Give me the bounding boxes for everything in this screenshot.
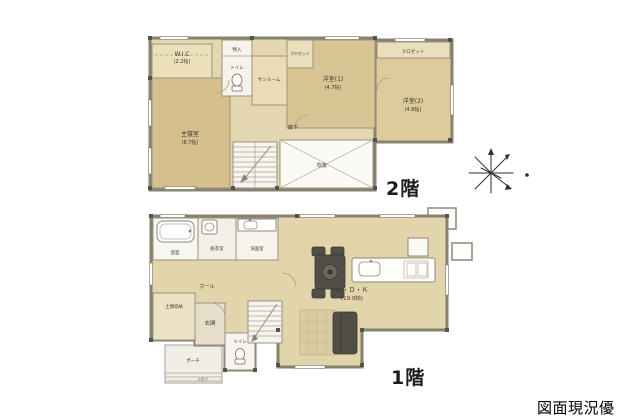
wic-size: (2.2帖) [174, 58, 191, 65]
floor1-plan: 浴室 脱衣室 洗面室 ホール 土間収納 玄関 トイレ ポーチ ※壁芯 Ｌ・Ｄ・Ｋ… [145, 203, 490, 398]
doma-storage-label: 土間収納 [165, 303, 183, 310]
toilet1f-label: トイレ [233, 340, 246, 345]
western1-size: (4.7帖) [325, 84, 342, 91]
floor1-label: 1階 [391, 363, 425, 390]
floor2-label: 2階 [386, 174, 420, 201]
floor1-room-doma-storage [153, 293, 195, 340]
disclaimer-text: 図面現況優先 [537, 397, 628, 420]
washing-machine-icon [202, 220, 217, 234]
toilet2f-label: トイレ [230, 66, 244, 71]
western2-label: 洋室(2) [403, 97, 424, 105]
kitchen-counter [352, 258, 435, 282]
washroom-label: 洗面室 [250, 245, 264, 252]
exterior-unit [452, 243, 472, 260]
toilet-icon [232, 74, 242, 91]
plan-note: ※壁芯 [197, 376, 208, 382]
living-rug [300, 310, 335, 355]
bath-label: 浴室 [170, 249, 180, 256]
porch-label: ポーチ [186, 357, 200, 364]
floorplan-page: W.I.C (2.2帖) 物入 トイレ サンルーム クロゼット 洋室(1) (4… [0, 0, 628, 420]
closet2-label: クロゼット [402, 48, 425, 55]
sofa [333, 312, 357, 354]
hallway-label: 廊下 [288, 124, 298, 131]
sink-icon [238, 219, 276, 231]
compass-dot [525, 173, 529, 177]
ldk-label: Ｌ・Ｄ・Ｋ [336, 286, 369, 294]
toilet-icon-1f [235, 349, 245, 365]
sunroom-label: サンルーム [258, 77, 281, 83]
western2-size: (4.8帖) [405, 106, 422, 113]
wic-label: W.I.C [174, 51, 189, 58]
entrance-label: 玄関 [204, 319, 216, 327]
storage-label: 物入 [233, 46, 242, 53]
void-label: 吹抜 [317, 162, 327, 169]
hall-label: ホール [199, 284, 214, 290]
compass-icon [455, 135, 535, 205]
refrigerator [408, 238, 428, 256]
dressing-label: 脱衣室 [210, 245, 224, 252]
ldk-size: (19.0帖) [341, 294, 363, 302]
closet1-label: クロゼット [291, 51, 310, 56]
bathtub-icon [157, 221, 194, 242]
western1-label: 洋室(1) [323, 75, 344, 83]
master-bedroom-label: 主寝室 [181, 130, 199, 138]
master-bedroom-size: (8.7帖) [182, 139, 199, 146]
